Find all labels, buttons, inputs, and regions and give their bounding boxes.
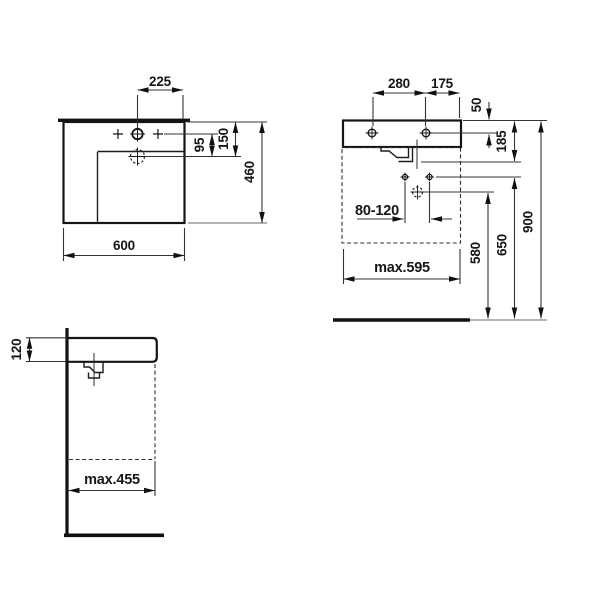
dim-600: 600 [64,238,185,256]
dim-label-185: 185 [494,130,509,153]
front-waste-connection [411,185,425,200]
dim-label-280: 280 [388,76,410,91]
dim-900: 900 [521,122,542,319]
front-mounting-hole-left [366,127,379,140]
plan-view: 225 95 150 460 600 [58,74,267,261]
plan-inner-bowl [98,152,185,222]
dim-650: 650 [495,178,515,319]
dim-label-50: 50 [469,98,484,113]
dim-label-580: 580 [468,242,483,264]
front-trap-outline [381,140,417,170]
front-fixing-point-left [401,173,410,182]
front-ext-top [373,97,460,126]
dim-label-600: 600 [113,238,135,253]
plan-drain-hole [129,148,147,166]
dim-225: 225 [138,74,184,90]
dim-label-650: 650 [495,234,510,256]
front-view: 280 175 50 185 80-120 max.595 580 [333,76,547,320]
dim-label-max455: max.455 [84,472,140,488]
plan-tap-hole [130,127,145,142]
side-ext-120 [26,338,66,362]
dim-460: 460 [242,122,262,223]
dim-label-150: 150 [216,128,231,150]
dim-50: 50 [469,98,489,148]
dim-label-225: 225 [149,74,172,89]
dim-120: 120 [9,338,30,362]
washbasin-technical-drawing: 225 95 150 460 600 [0,0,600,600]
dim-175: 175 [426,76,460,93]
dim-label-max595: max.595 [374,260,430,276]
dim-label-460: 460 [242,161,257,183]
dim-label-120: 120 [9,339,24,361]
dim-80-120: 80-120 [355,203,452,219]
plus-mark-right [153,129,163,139]
side-trap-outline [84,353,103,386]
dim-max595: max.595 [344,260,461,279]
dim-185: 185 [494,122,515,162]
dim-label-900: 900 [521,211,536,233]
front-mounting-hole-right [420,127,433,140]
dim-max455: max.455 [69,472,156,491]
front-basin-body [343,121,461,148]
dim-label-95: 95 [192,137,207,152]
side-view: 120 max.455 [9,328,164,537]
front-fixing-point-right [425,173,434,182]
plan-outer-rim [64,122,185,223]
dim-150: 150 [216,122,236,157]
dim-label-175: 175 [431,76,454,91]
dim-280: 280 [373,76,426,93]
plus-mark-left [113,129,123,139]
drawing-svg: 225 95 150 460 600 [0,0,600,600]
dim-580: 580 [468,193,488,319]
dim-95: 95 [192,134,212,157]
dim-label-80-120: 80-120 [355,203,399,219]
side-basin-profile [66,338,157,362]
